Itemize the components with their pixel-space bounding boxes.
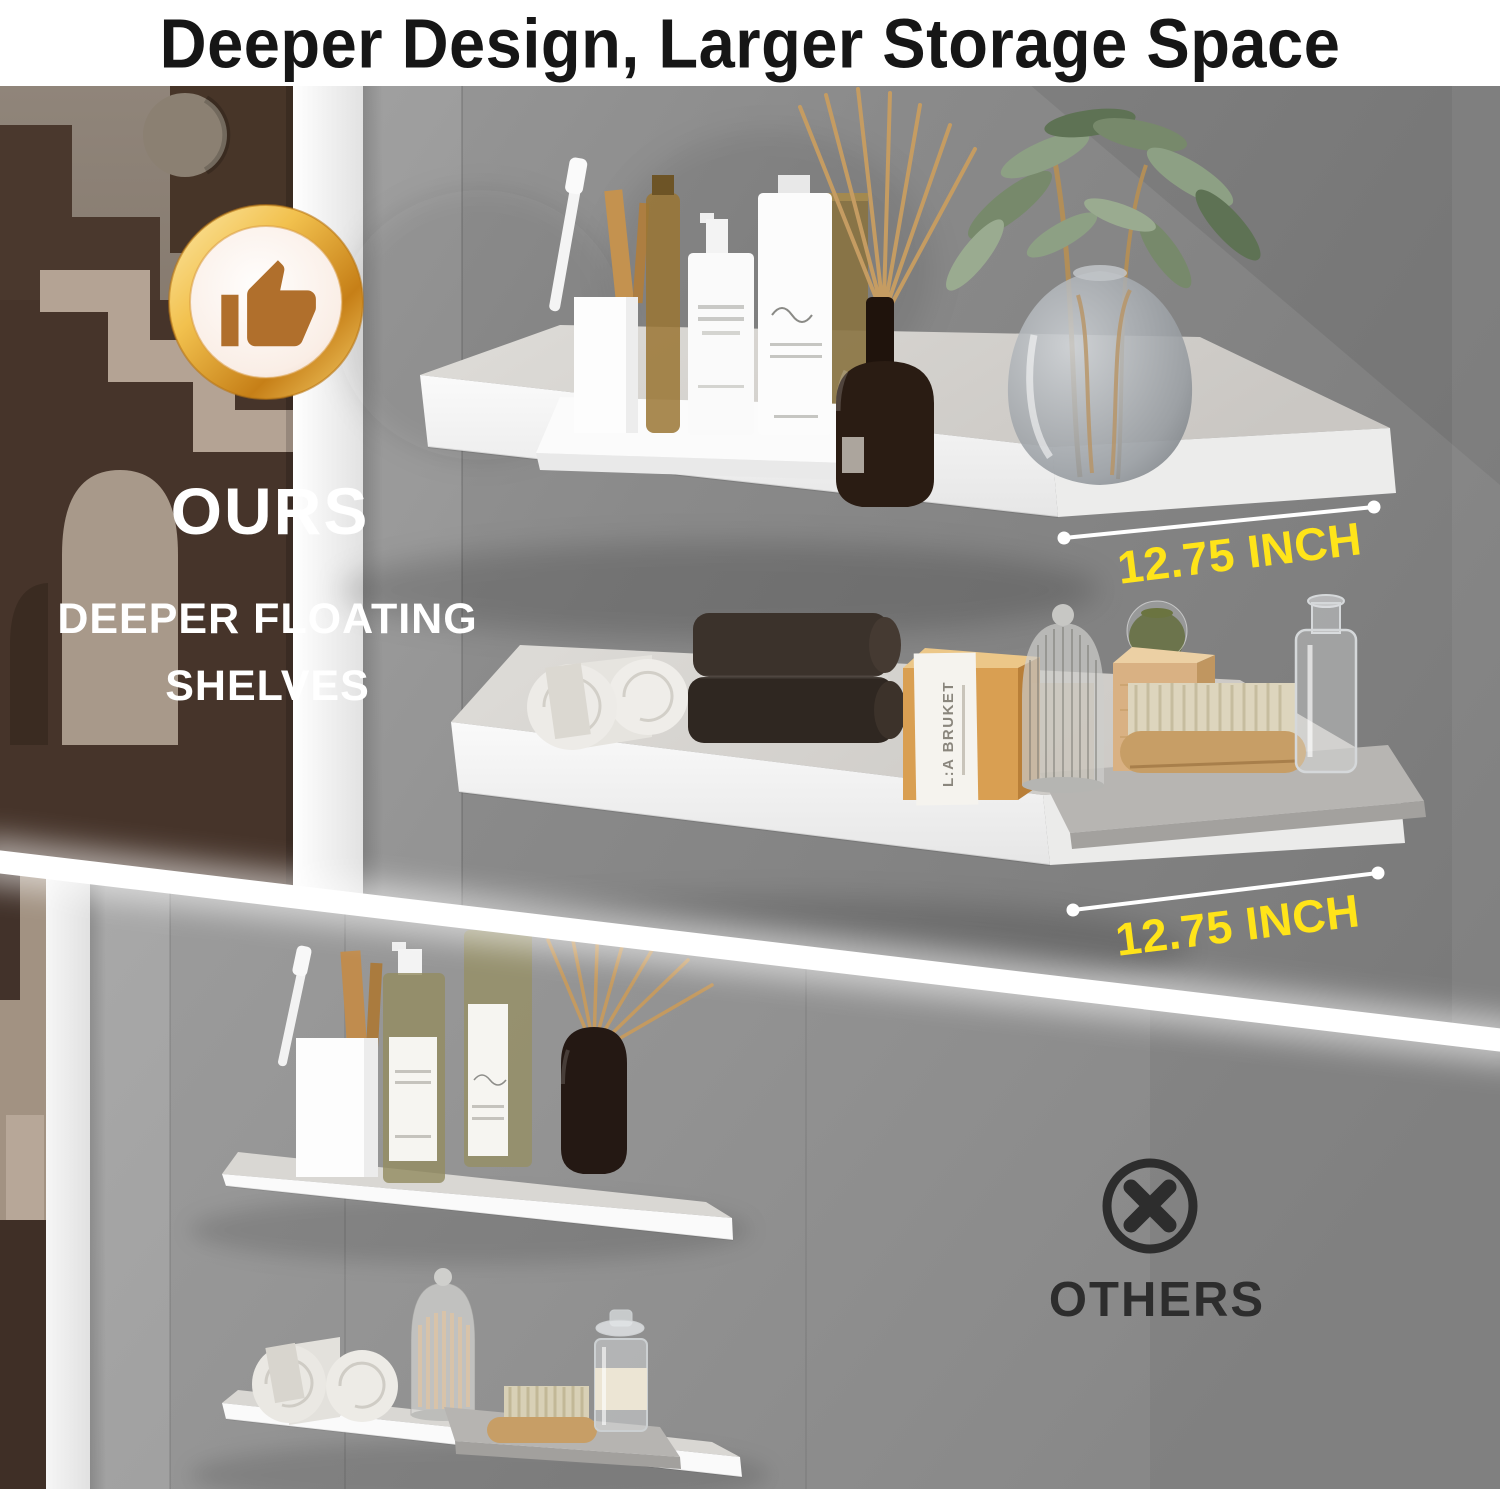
ours-heading: OURS [95,478,445,544]
ours-subheading: DEEPER FLOATING SHELVES [10,586,525,719]
product-comparison-infographic: Deeper Design, Larger Storage Space [0,0,1500,1489]
others-heading: OTHERS [1002,1272,1312,1328]
page-title: Deeper Design, Larger Storage Space [160,3,1341,83]
ours-subheading-line1: DEEPER FLOATING [10,586,525,653]
thumbs-up-badge [164,200,368,404]
ours-subheading-line2: SHELVES [10,653,525,720]
title-bar: Deeper Design, Larger Storage Space [0,0,1500,86]
others-artwork [0,785,48,1489]
others-wall-pillar [46,785,90,1489]
soap-brand-label: L:A BRUKET [940,681,957,787]
circled-x-icon [1098,1154,1202,1258]
